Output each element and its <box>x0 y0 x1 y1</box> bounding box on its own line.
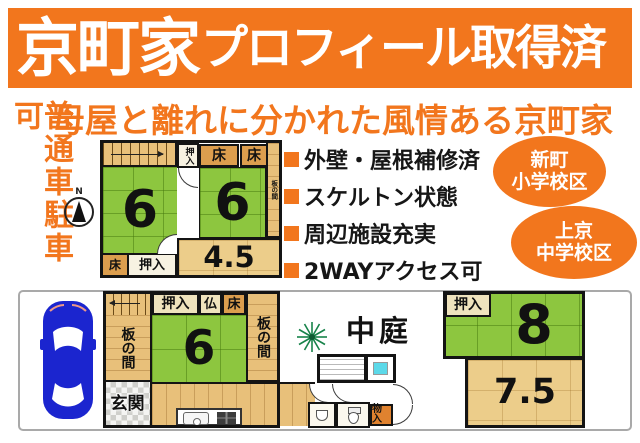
feature-list: 外壁・屋根補修済 スケルトン状態 周辺施設充実 2WAYアクセス可 <box>284 144 482 292</box>
entrance-genkan: 玄関 <box>105 382 152 426</box>
compass-icon: N <box>63 188 95 228</box>
room-2f-right-6: 6 <box>199 167 266 238</box>
butsudan-alcove: 仏 <box>199 293 222 315</box>
door-arc <box>393 384 413 404</box>
car-top-view-icon <box>40 299 96 421</box>
annex-closet: 押入 <box>445 293 491 317</box>
bullet-square-icon <box>284 226 299 241</box>
hand-basin-icon <box>316 410 328 421</box>
kitchen-counter <box>176 408 242 426</box>
bathroom <box>365 354 396 383</box>
toilet-icon <box>348 407 359 423</box>
closet-2f-top: 押入 <box>177 143 199 168</box>
washroom <box>317 354 367 383</box>
bullet-square-icon <box>284 263 299 278</box>
door-arc <box>332 384 351 403</box>
stairs-2f <box>103 143 177 167</box>
badge-elementary-school: 新町 小学校区 <box>493 136 606 207</box>
tokonoma-2f-2: 床 <box>240 144 268 167</box>
itanoma-right: 板の間 <box>246 293 278 382</box>
flyer-canvas: 京町家 プロフィール取得済 母屋と離れに分かれた風情ある京町家 普通車駐車可 N… <box>0 0 640 443</box>
tokonoma-1f: 床 <box>222 293 246 315</box>
bathtub-icon <box>371 360 390 377</box>
itanoma-left: 板の間 <box>105 315 152 382</box>
feature-item: 外壁・屋根補修済 <box>284 144 482 174</box>
toilet-room-2 <box>336 402 370 428</box>
title-banner: 京町家 プロフィール取得済 <box>8 8 632 88</box>
feature-item: スケルトン状態 <box>284 181 482 211</box>
kitchen-sink-icon <box>183 412 209 425</box>
bullet-square-icon <box>284 152 299 167</box>
itanoma-strip-2f: 板の間 <box>266 143 279 238</box>
banner-title-emphasis: 京町家 <box>16 17 199 80</box>
room-2f-4-5: 4.5 <box>177 238 279 275</box>
badge-junior-high-school: 上京 中学校区 <box>511 206 637 279</box>
subtitle: 母屋と離れに分かれた風情ある京町家 <box>52 94 613 142</box>
tree-icon <box>296 321 328 353</box>
tokonoma-2f-bottom: 床 <box>103 253 129 275</box>
closet-2f-bottom: 押入 <box>129 253 177 275</box>
floorplan-2f: 押入 床 床 板の間 6 6 4.5 床 押入 <box>100 140 282 278</box>
toilet-room-1 <box>308 402 336 428</box>
compass-north-label: N <box>63 188 95 197</box>
room-1f-6: 6 <box>152 315 246 382</box>
tokonoma-2f-1: 床 <box>199 144 239 167</box>
parking-note: 普通車駐車可 <box>10 100 70 295</box>
closet-1f: 押入 <box>152 293 199 315</box>
stairs-1f <box>105 293 152 317</box>
banner-title-rest: プロフィール取得済 <box>201 25 605 72</box>
door-arc <box>178 168 198 188</box>
feature-item: 周辺施設充実 <box>284 218 482 248</box>
annex-room-7-5: 7.5 <box>465 357 585 428</box>
stove-icon <box>217 412 236 424</box>
bullet-square-icon <box>284 189 299 204</box>
courtyard-label: 中庭 <box>346 308 412 350</box>
storage-mononyu: 物入 <box>370 404 393 426</box>
door-arc <box>393 405 413 425</box>
floorplan-1f: 押入 仏 床 板の間 板の間 6 玄関 <box>103 291 585 428</box>
feature-item: 2WAYアクセス可 <box>284 255 482 285</box>
